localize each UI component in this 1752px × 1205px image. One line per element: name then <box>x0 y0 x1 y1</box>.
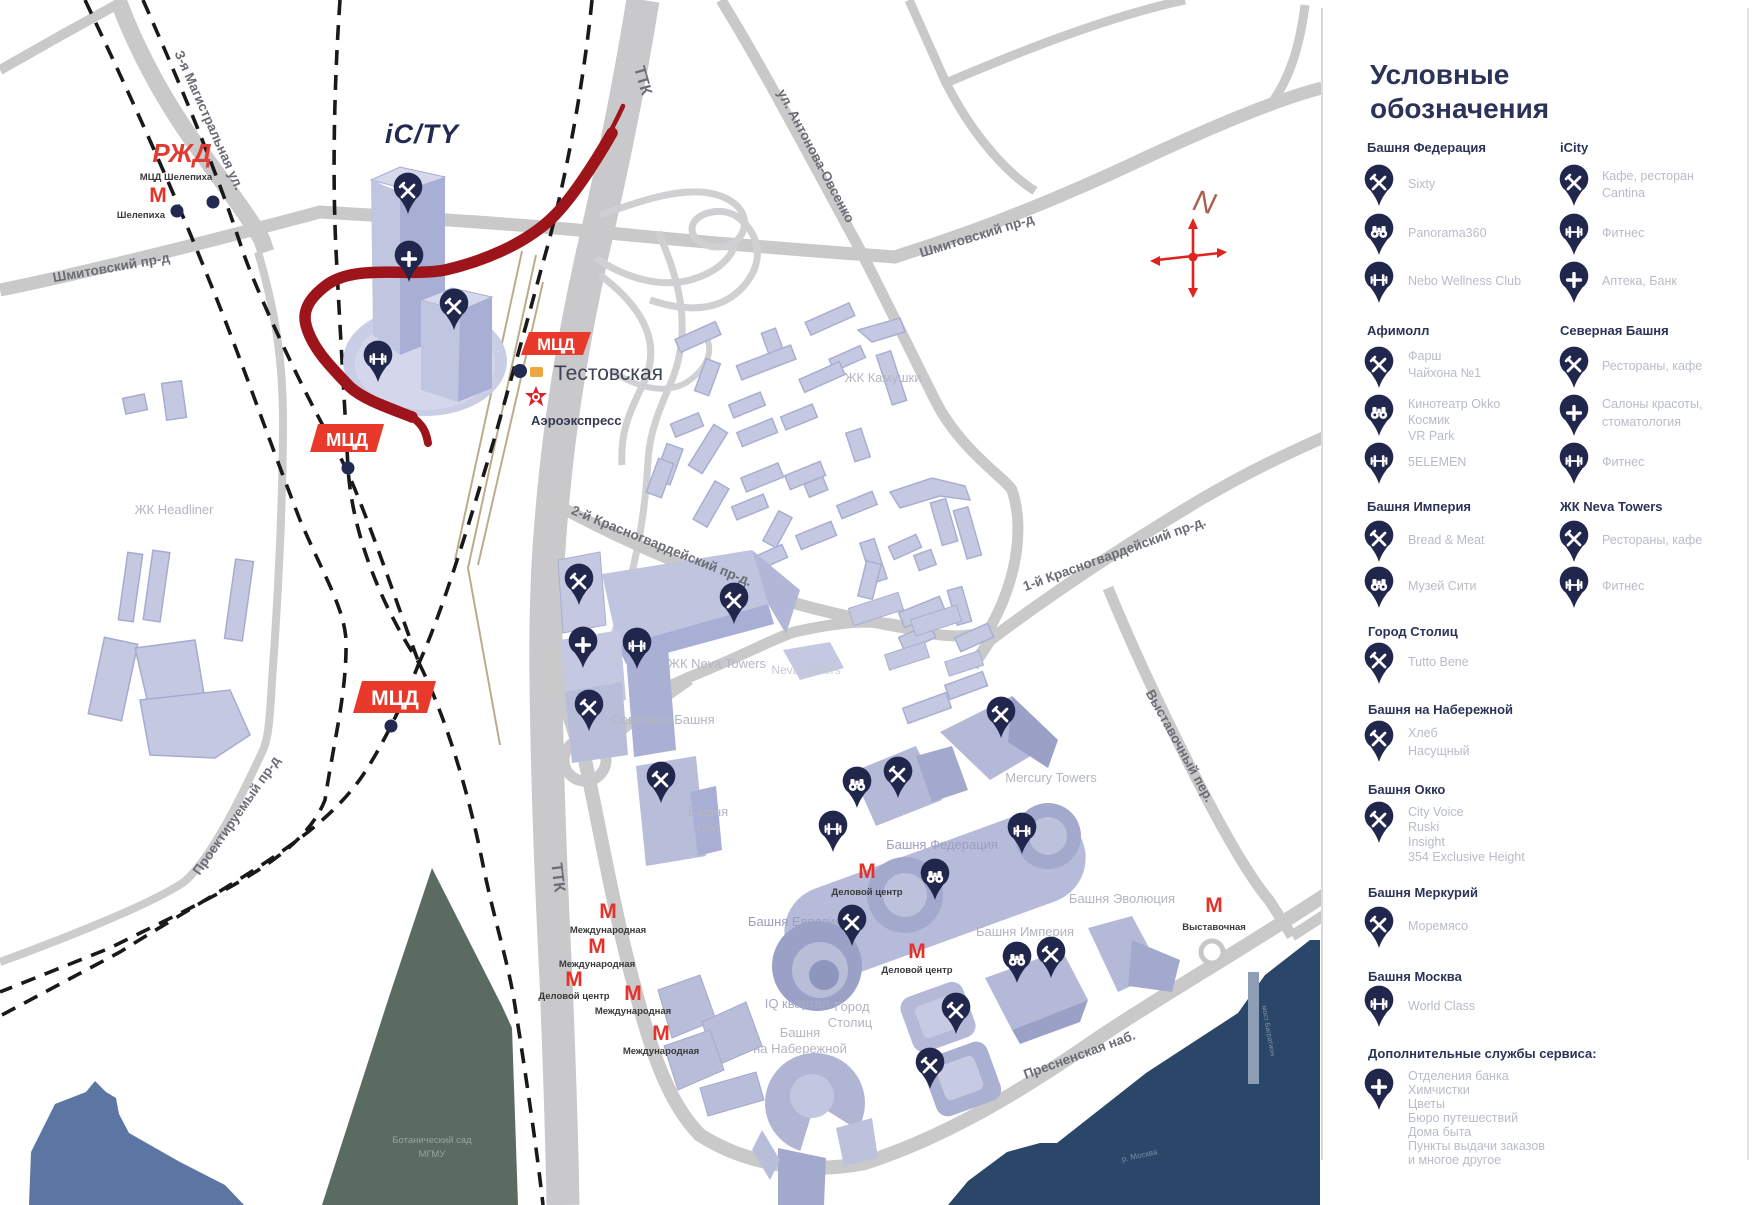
svg-text:Фитнес: Фитнес <box>1602 455 1644 469</box>
svg-text:Башня Окко: Башня Окко <box>1368 782 1445 797</box>
svg-text:Столиц: Столиц <box>828 1015 873 1030</box>
svg-text:Бюро путешествий: Бюро путешествий <box>1408 1111 1518 1125</box>
svg-text:Башня Эволюция: Башня Эволюция <box>1069 891 1175 906</box>
svg-text:ЖК Neva Towers: ЖК Neva Towers <box>1559 499 1663 514</box>
svg-text:Tutto Bene: Tutto Bene <box>1408 655 1469 669</box>
svg-text:Башня Москва: Башня Москва <box>1368 969 1463 984</box>
svg-text:Neva Towers: Neva Towers <box>771 663 840 677</box>
svg-text:Тестовская: Тестовская <box>554 362 663 385</box>
svg-text:Фитнес: Фитнес <box>1602 226 1644 240</box>
svg-text:Фитнес: Фитнес <box>1602 579 1644 593</box>
svg-text:Башня Меркурий: Башня Меркурий <box>1368 885 1478 900</box>
svg-text:обозначения: обозначения <box>1370 93 1549 124</box>
svg-text:Выставочная: Выставочная <box>1182 922 1246 933</box>
svg-text:Cantina: Cantina <box>1602 186 1645 200</box>
svg-text:Город Столиц: Город Столиц <box>1368 624 1458 639</box>
svg-text:Международная: Международная <box>570 925 646 936</box>
svg-text:Башня Федерация: Башня Федерация <box>886 837 998 852</box>
svg-text:Bread & Meat: Bread & Meat <box>1408 533 1485 547</box>
svg-text:и многое другое: и многое другое <box>1408 1153 1501 1167</box>
svg-text:Музей Сити: Музей Сити <box>1408 579 1477 593</box>
svg-text:Деловой центр: Деловой центр <box>881 965 952 976</box>
svg-text:Дома быта: Дома быта <box>1408 1125 1471 1139</box>
svg-text:Рестораны, кафе: Рестораны, кафе <box>1602 533 1702 547</box>
svg-text:Башня Евразия: Башня Евразия <box>748 914 842 929</box>
svg-text:МГМУ: МГМУ <box>419 1149 447 1160</box>
svg-text:МЦД: МЦД <box>371 687 419 710</box>
svg-text:Салоны красоты,: Салоны красоты, <box>1602 397 1703 411</box>
svg-text:Фарш: Фарш <box>1408 349 1441 363</box>
svg-text:Дополнительные службы сервиса:: Дополнительные службы сервиса: <box>1368 1046 1597 1061</box>
svg-text:Международная: Международная <box>595 1006 671 1017</box>
svg-text:Шелепиха: Шелепиха <box>117 210 166 221</box>
svg-text:Пункты выдачи заказов: Пункты выдачи заказов <box>1408 1139 1545 1153</box>
svg-text:Деловой центр: Деловой центр <box>538 991 609 1002</box>
svg-text:VR Park: VR Park <box>1408 429 1455 443</box>
svg-text:Насущный: Насущный <box>1408 744 1470 758</box>
svg-text:стоматология: стоматология <box>1602 415 1681 429</box>
svg-text:Условные: Условные <box>1370 59 1509 90</box>
svg-text:Insight: Insight <box>1408 835 1445 849</box>
svg-text:Аэроэкспресс: Аэроэкспресс <box>531 413 622 428</box>
svg-text:Башня на Набережной: Башня на Набережной <box>1368 702 1513 717</box>
svg-text:World Class: World Class <box>1408 999 1475 1013</box>
svg-text:354 Exclusive Height: 354 Exclusive Height <box>1408 850 1525 864</box>
svg-text:Аптека, Банк: Аптека, Банк <box>1602 274 1677 288</box>
svg-text:Ботанический сад: Ботанический сад <box>392 1135 472 1146</box>
svg-text:Башня Империя: Башня Империя <box>976 924 1074 939</box>
svg-text:Город: Город <box>834 999 870 1014</box>
svg-text:Отделения банка: Отделения банка <box>1408 1069 1509 1083</box>
svg-text:iCity: iCity <box>1560 140 1589 155</box>
svg-text:Моремясо: Моремясо <box>1408 919 1468 933</box>
svg-text:ЖК Neva Towers: ЖК Neva Towers <box>668 656 767 671</box>
svg-text:City Voice: City Voice <box>1408 805 1464 819</box>
svg-text:МЦД: МЦД <box>326 429 368 450</box>
svg-text:Кафе, ресторан: Кафе, ресторан <box>1602 169 1694 183</box>
svg-text:Башня Федерация: Башня Федерация <box>1367 140 1486 155</box>
svg-text:Башня Империя: Башня Империя <box>1367 499 1471 514</box>
svg-text:Рестораны, кафе: Рестораны, кафе <box>1602 359 1702 373</box>
svg-text:Северная Башня: Северная Башня <box>611 712 714 727</box>
svg-text:Кинотеатр Okko: Кинотеатр Okko <box>1408 397 1500 411</box>
svg-text:ЖК Камушки: ЖК Камушки <box>845 370 922 385</box>
svg-text:Panorama360: Panorama360 <box>1408 226 1487 240</box>
svg-text:Nebo Wellness Club: Nebo Wellness Club <box>1408 274 1521 288</box>
svg-text:РЖД: РЖД <box>152 138 211 168</box>
svg-text:Космик: Космик <box>1408 413 1450 427</box>
svg-text:Хлеб: Хлеб <box>1408 726 1438 740</box>
svg-text:Цветы: Цветы <box>1408 1097 1445 1111</box>
svg-text:Афимолл: Афимолл <box>1367 323 1429 338</box>
svg-text:ТТК: ТТК <box>547 862 567 893</box>
svg-text:5ELEMEN: 5ELEMEN <box>1408 455 1466 469</box>
svg-text:Международная: Международная <box>623 1046 699 1057</box>
svg-text:Башня: Башня <box>688 804 728 819</box>
svg-text:МЦД: МЦД <box>537 336 575 354</box>
svg-text:Химчистки: Химчистки <box>1408 1083 1470 1097</box>
svg-text:Око: Око <box>696 820 719 835</box>
svg-text:Ruski: Ruski <box>1408 820 1439 834</box>
svg-text:Sixty: Sixty <box>1408 177 1436 191</box>
svg-text:Деловой центр: Деловой центр <box>831 887 902 898</box>
svg-text:Mercury Towers: Mercury Towers <box>1005 770 1097 785</box>
svg-text:IQ квартал: IQ квартал <box>765 996 830 1011</box>
svg-text:iC/TY: iC/TY <box>385 119 461 149</box>
svg-text:Северная Башня: Северная Башня <box>1560 323 1669 338</box>
svg-text:МЦД Шелепиха: МЦД Шелепиха <box>140 172 213 183</box>
svg-text:Башня: Башня <box>780 1025 820 1040</box>
svg-text:Чайхона №1: Чайхона №1 <box>1408 366 1481 380</box>
svg-text:на Набережной: на Набережной <box>753 1041 847 1056</box>
svg-text:ЖК Headliner: ЖК Headliner <box>135 502 215 517</box>
